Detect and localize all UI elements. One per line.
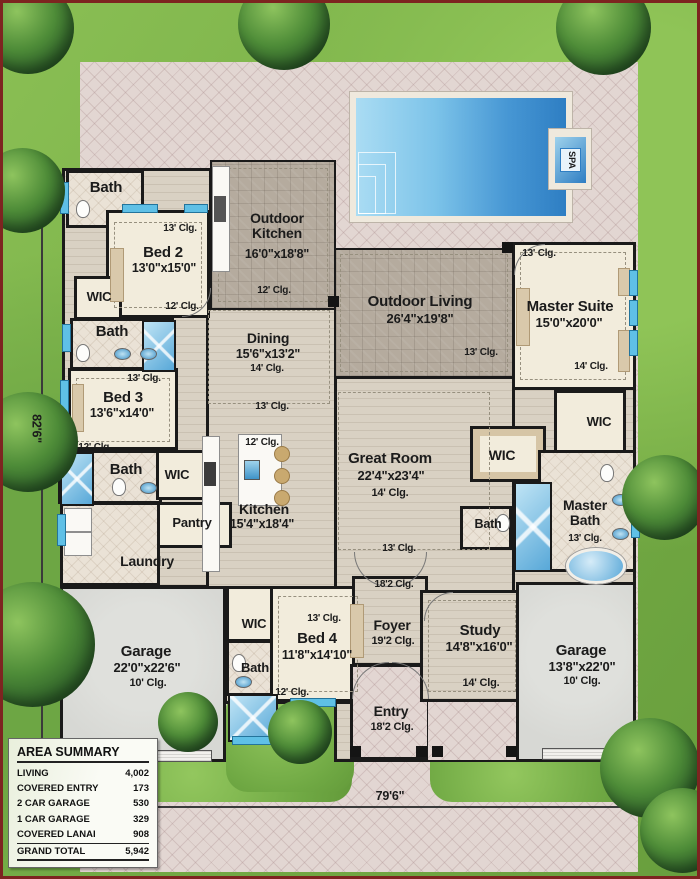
toilet — [112, 478, 126, 496]
kitchen-clg: 12' Clg. — [245, 438, 279, 449]
sink — [612, 528, 629, 540]
summary-value: 908 — [133, 827, 149, 842]
summary-label: 2 CAR GARAGE — [17, 796, 90, 811]
window — [62, 324, 71, 352]
window — [184, 204, 208, 213]
bed2-size: 13'0"x15'0" — [132, 262, 196, 275]
summary-label: LIVING — [17, 766, 49, 781]
dining-size: 15'6"x13'2" — [236, 348, 300, 361]
area-summary-title: AREA SUMMARY — [17, 745, 149, 763]
outdoor-living-name: Outdoor Living — [368, 294, 473, 310]
lot-height-label: 82'6" — [29, 414, 42, 443]
wic3-label: WIC — [489, 448, 516, 463]
summary-row: COVERED LANAI 908 — [17, 827, 149, 842]
garage-right-size: 13'8"x22'0" — [549, 660, 616, 674]
wic5-label: WIC — [242, 617, 267, 631]
master-clg-bottom: 14' Clg. — [574, 362, 608, 373]
dimension-line-bottom — [158, 806, 636, 808]
great-room-clg: 14' Clg. — [371, 488, 408, 500]
entry-name: Entry — [374, 704, 409, 719]
foyer-clg: 19'2 Clg. — [371, 636, 414, 648]
wic4-label: WIC — [587, 415, 612, 429]
spa: SPA — [548, 128, 592, 190]
outdoor-kitchen-clg: 12' Clg. — [257, 286, 291, 297]
foyer-name: Foyer — [373, 618, 410, 633]
floor-plan: SPA — [0, 0, 700, 879]
master-clg-top: 13' Clg. — [522, 249, 556, 260]
window — [57, 514, 66, 546]
bed4-name: Bed 4 — [297, 631, 337, 647]
dining-clg-bottom: 13' Clg. — [255, 402, 289, 413]
window — [629, 300, 638, 326]
dining-name: Dining — [247, 331, 289, 346]
outdoor-living-clg: 13' Clg. — [464, 348, 498, 359]
summary-value: 329 — [133, 812, 149, 827]
master-size: 15'0"x20'0" — [536, 316, 603, 330]
summary-total-value: 5,942 — [125, 844, 149, 859]
sink — [140, 348, 157, 360]
island-sink — [244, 460, 260, 480]
kitchen-counter — [202, 436, 220, 572]
bed4-size: 11'8"x14'10" — [282, 649, 352, 662]
porch-column — [432, 746, 443, 757]
bed4-clg-bottom: 12' Clg. — [275, 688, 309, 699]
bed2-clg-top: 13' Clg. — [163, 224, 197, 235]
tree — [622, 455, 700, 540]
outdoor-living-size: 26'4"x19'8" — [387, 312, 454, 326]
porch-column — [350, 746, 361, 757]
sink — [140, 482, 157, 494]
bath5-label: Bath — [241, 661, 269, 675]
study-name: Study — [460, 623, 501, 639]
bed-furniture — [516, 288, 530, 346]
porch-column — [416, 746, 427, 757]
sink — [114, 348, 131, 360]
shower-master — [514, 482, 552, 572]
dining-clg: 14' Clg. — [250, 364, 284, 375]
garage-right-name: Garage — [556, 643, 607, 659]
garage-left-name: Garage — [121, 644, 172, 660]
bath1-label: Bath — [90, 180, 123, 196]
window — [122, 204, 158, 213]
master-bath-name: Master Bath — [557, 498, 613, 529]
lot-width-label: 79'6" — [376, 790, 405, 803]
bed3-size: 13'6"x14'0" — [90, 407, 154, 420]
kitchen-name: Kitchen — [239, 502, 289, 517]
bed3-name: Bed 3 — [103, 390, 143, 406]
summary-label: 1 CAR GARAGE — [17, 812, 90, 827]
bed2-clg-bottom: 12' Clg. — [165, 302, 199, 313]
summary-row: LIVING 4,002 — [17, 766, 149, 781]
summary-row: COVERED ENTRY 173 — [17, 781, 149, 796]
dryer — [64, 532, 92, 556]
spa-label: SPA — [567, 151, 577, 169]
summary-total-label: GRAND TOTAL — [17, 844, 85, 859]
summary-value: 4,002 — [125, 766, 149, 781]
bed3-clg-bottom: 12' Clg. — [78, 443, 112, 454]
window — [629, 330, 638, 356]
bed-furniture — [110, 248, 124, 302]
tree — [268, 700, 332, 764]
lanai-column — [328, 296, 339, 307]
window — [629, 270, 638, 296]
garage-left-clg: 10' Clg. — [129, 678, 166, 690]
tree — [158, 692, 218, 752]
master-tub — [566, 548, 626, 584]
summary-label: COVERED ENTRY — [17, 781, 98, 796]
grill — [214, 196, 226, 222]
outdoor-kitchen-size: 16'0"x18'8" — [245, 248, 309, 261]
sink — [235, 676, 252, 688]
bed3-clg-top: 13' Clg. — [127, 374, 161, 385]
bath4-label: Bath — [475, 518, 502, 531]
bed2-name: Bed 2 — [143, 245, 183, 261]
toilet — [76, 200, 90, 218]
bath3-label: Bath — [110, 462, 143, 478]
entry-clg: 18'2 Clg. — [370, 722, 413, 734]
toilet — [76, 344, 90, 362]
master-name: Master Suite — [527, 299, 614, 315]
hall-clg: 13' Clg. — [382, 544, 416, 555]
tree — [0, 0, 74, 74]
tree — [0, 148, 65, 233]
bar-stool — [274, 468, 290, 484]
cooktop — [204, 462, 216, 486]
area-summary: AREA SUMMARY LIVING 4,002 COVERED ENTRY … — [8, 738, 158, 868]
summary-value: 173 — [133, 781, 149, 796]
pool — [350, 92, 572, 222]
bed4-clg-top: 13' Clg. — [307, 614, 341, 625]
laundry-label: Laundry — [120, 554, 174, 569]
wic1-label: WIC — [87, 290, 112, 304]
lanai-column — [502, 242, 513, 253]
great-room-size: 22'4"x23'4" — [358, 469, 425, 483]
kitchen-size: 15'4"x18'4" — [230, 518, 294, 531]
pantry-label: Pantry — [172, 516, 211, 530]
foyer-clg-top: 18'2 Clg. — [375, 580, 414, 591]
washer — [64, 508, 92, 532]
summary-row: 2 CAR GARAGE 530 — [17, 796, 149, 811]
garage-right-clg: 10' Clg. — [563, 676, 600, 688]
garage-left-size: 22'0"x22'6" — [114, 661, 181, 675]
study-clg: 14' Clg. — [462, 678, 499, 690]
great-room-name: Great Room — [348, 451, 432, 467]
bath2-label: Bath — [96, 324, 129, 340]
summary-total-row: GRAND TOTAL 5,942 — [17, 843, 149, 861]
study-size: 14'8"x16'0" — [446, 640, 513, 654]
outdoor-kitchen-name: Outdoor Kitchen — [237, 211, 317, 242]
shower-bath-2 — [142, 320, 176, 372]
toilet — [600, 464, 614, 482]
tree — [238, 0, 330, 70]
wic2-label: WIC — [165, 468, 190, 482]
pool-step — [358, 176, 376, 214]
summary-row: 1 CAR GARAGE 329 — [17, 812, 149, 827]
summary-label: COVERED LANAI — [17, 827, 96, 842]
master-bath-clg: 13' Clg. — [568, 534, 602, 545]
porch-column — [506, 746, 517, 757]
summary-value: 530 — [133, 796, 149, 811]
